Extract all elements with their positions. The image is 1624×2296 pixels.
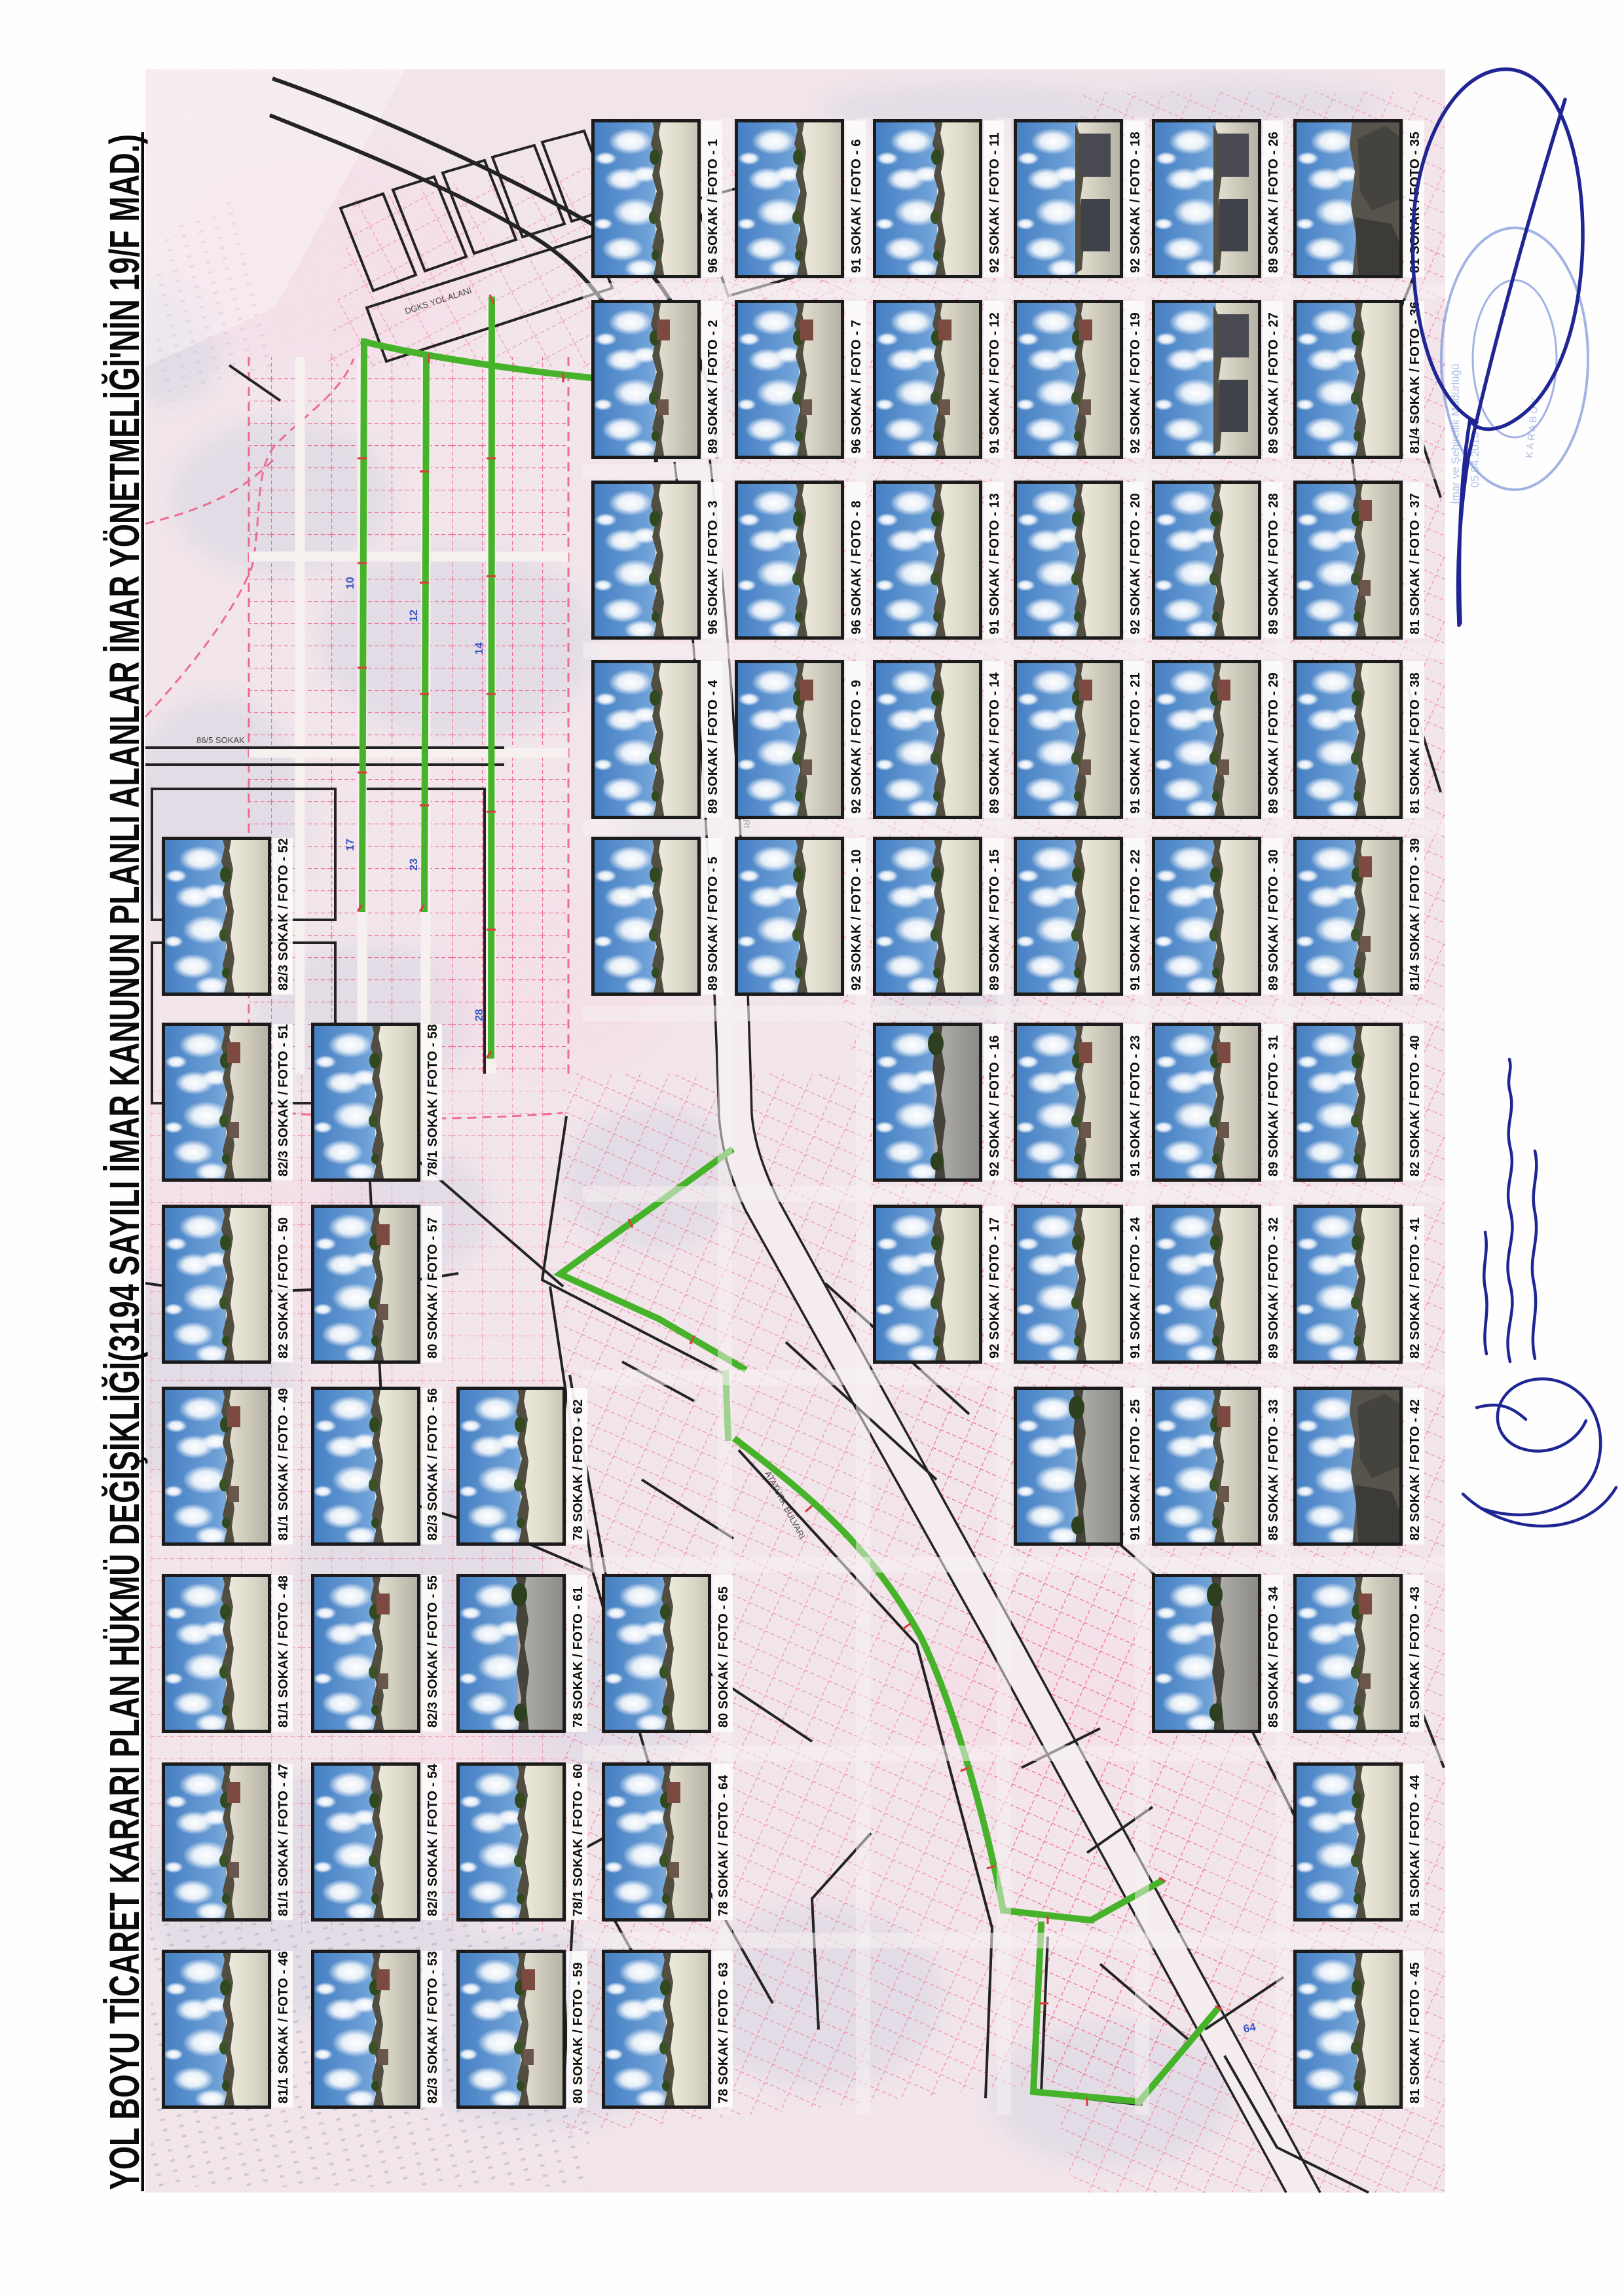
svg-text:82 SOKAK / FOTO - 40: 82 SOKAK / FOTO - 40	[1408, 1035, 1422, 1176]
svg-text:96 SOKAK / FOTO - 8: 96 SOKAK / FOTO - 8	[849, 500, 864, 634]
svg-text:85 SOKAK / FOTO - 34: 85 SOKAK / FOTO - 34	[1266, 1586, 1281, 1728]
svg-text:89 SOKAK / FOTO - 28: 89 SOKAK / FOTO - 28	[1266, 493, 1281, 634]
svg-text:91 SOKAK / FOTO - 22: 91 SOKAK / FOTO - 22	[1128, 849, 1143, 991]
svg-text:92 SOKAK / FOTO - 18: 92 SOKAK / FOTO - 18	[1128, 132, 1143, 273]
svg-text:78/1 SOKAK / FOTO - 60: 78/1 SOKAK / FOTO - 60	[571, 1764, 585, 1916]
svg-text:78 SOKAK / FOTO - 62: 78 SOKAK / FOTO - 62	[571, 1399, 585, 1540]
svg-text:80 SOKAK / FOTO - 59: 80 SOKAK / FOTO - 59	[571, 1962, 585, 2104]
svg-text:82 SOKAK / FOTO - 50: 82 SOKAK / FOTO - 50	[276, 1217, 291, 1358]
svg-text:96 SOKAK / FOTO - 7: 96 SOKAK / FOTO - 7	[849, 319, 864, 454]
svg-text:89 SOKAK / FOTO - 14: 89 SOKAK / FOTO - 14	[987, 672, 1002, 814]
svg-text:81/1 SOKAK / FOTO - 47: 81/1 SOKAK / FOTO - 47	[276, 1764, 291, 1916]
svg-text:92 SOKAK / FOTO - 10: 92 SOKAK / FOTO - 10	[849, 849, 864, 991]
svg-text:91 SOKAK / FOTO - 21: 91 SOKAK / FOTO - 21	[1128, 672, 1143, 814]
svg-text:91 SOKAK / FOTO - 6: 91 SOKAK / FOTO - 6	[849, 139, 864, 273]
svg-text:82 SOKAK / FOTO - 41: 82 SOKAK / FOTO - 41	[1408, 1217, 1422, 1358]
svg-text:89 SOKAK / FOTO - 29: 89 SOKAK / FOTO - 29	[1266, 672, 1281, 814]
svg-text:91 SOKAK / FOTO - 12: 91 SOKAK / FOTO - 12	[987, 312, 1002, 454]
svg-text:91 SOKAK / FOTO - 13: 91 SOKAK / FOTO - 13	[987, 493, 1002, 634]
svg-text:23: 23	[407, 858, 420, 871]
svg-text:92 SOKAK / FOTO - 11: 92 SOKAK / FOTO - 11	[987, 132, 1002, 273]
svg-text:YOL BOYU TİCARET KARARI PLAN H: YOL BOYU TİCARET KARARI PLAN HÜKMÜ DEĞİŞ…	[101, 134, 148, 2190]
svg-text:İmar ve Şehircilik Müdürlüğü: İmar ve Şehircilik Müdürlüğü	[1449, 364, 1462, 504]
svg-text:89 SOKAK / FOTO - 2: 89 SOKAK / FOTO - 2	[706, 319, 720, 454]
svg-text:81 SOKAK / FOTO - 38: 81 SOKAK / FOTO - 38	[1408, 672, 1422, 814]
svg-text:78 SOKAK / FOTO - 64: 78 SOKAK / FOTO - 64	[716, 1774, 731, 1916]
svg-text:92 SOKAK / FOTO - 20: 92 SOKAK / FOTO - 20	[1128, 493, 1143, 634]
svg-text:82/3 SOKAK / FOTO - 56: 82/3 SOKAK / FOTO - 56	[426, 1388, 440, 1540]
svg-text:85 SOKAK / FOTO - 33: 85 SOKAK / FOTO - 33	[1266, 1399, 1281, 1540]
svg-text:82/3 SOKAK / FOTO - 51: 82/3 SOKAK / FOTO - 51	[276, 1024, 291, 1176]
svg-text:81 SOKAK / FOTO - 37: 81 SOKAK / FOTO - 37	[1408, 493, 1422, 634]
svg-text:81 SOKAK / FOTO - 45: 81 SOKAK / FOTO - 45	[1408, 1962, 1422, 2104]
svg-text:89 SOKAK / FOTO - 30: 89 SOKAK / FOTO - 30	[1266, 849, 1281, 991]
svg-text:10: 10	[344, 577, 356, 589]
svg-text:92 SOKAK / FOTO - 16: 92 SOKAK / FOTO - 16	[987, 1035, 1002, 1176]
svg-text:80 SOKAK / FOTO - 65: 80 SOKAK / FOTO - 65	[716, 1586, 731, 1728]
svg-text:78 SOKAK / FOTO - 61: 78 SOKAK / FOTO - 61	[571, 1586, 585, 1728]
svg-text:17: 17	[344, 839, 356, 851]
svg-text:92 SOKAK / FOTO - 19: 92 SOKAK / FOTO - 19	[1128, 312, 1143, 454]
svg-text:89 SOKAK / FOTO - 5: 89 SOKAK / FOTO - 5	[706, 856, 720, 991]
svg-text:91 SOKAK / FOTO - 25: 91 SOKAK / FOTO - 25	[1128, 1399, 1143, 1540]
svg-text:89 SOKAK / FOTO - 4: 89 SOKAK / FOTO - 4	[706, 680, 720, 814]
svg-text:89 SOKAK / FOTO - 15: 89 SOKAK / FOTO - 15	[987, 849, 1002, 991]
svg-text:81/1 SOKAK / FOTO - 49: 81/1 SOKAK / FOTO - 49	[276, 1388, 291, 1540]
svg-text:82/3 SOKAK / FOTO - 53: 82/3 SOKAK / FOTO - 53	[426, 1951, 440, 2104]
svg-text:89 SOKAK / FOTO - 31: 89 SOKAK / FOTO - 31	[1266, 1035, 1281, 1176]
svg-text:81 SOKAK / FOTO - 44: 81 SOKAK / FOTO - 44	[1408, 1774, 1422, 1916]
svg-text:91 SOKAK / FOTO - 24: 91 SOKAK / FOTO - 24	[1128, 1216, 1143, 1358]
svg-text:96 SOKAK / FOTO - 3: 96 SOKAK / FOTO - 3	[706, 500, 720, 634]
svg-text:81/1 SOKAK / FOTO - 46: 81/1 SOKAK / FOTO - 46	[276, 1951, 291, 2104]
svg-text:96 SOKAK / FOTO - 1: 96 SOKAK / FOTO - 1	[706, 139, 720, 273]
svg-text:12: 12	[407, 610, 420, 622]
svg-text:82/3 SOKAK / FOTO - 52: 82/3 SOKAK / FOTO - 52	[276, 838, 291, 991]
svg-text:86/5 SOKAK: 86/5 SOKAK	[196, 735, 245, 745]
svg-text:28: 28	[473, 1009, 485, 1021]
svg-text:92 SOKAK / FOTO - 17: 92 SOKAK / FOTO - 17	[987, 1217, 1002, 1358]
svg-text:81/4 SOKAK / FOTO - 39: 81/4 SOKAK / FOTO - 39	[1408, 838, 1422, 991]
svg-text:78 SOKAK / FOTO - 63: 78 SOKAK / FOTO - 63	[716, 1962, 731, 2104]
svg-text:82 SOKAK / FOTO - 42: 82 SOKAK / FOTO - 42	[1408, 1399, 1422, 1540]
svg-text:78/1 SOKAK / FOTO - 58: 78/1 SOKAK / FOTO - 58	[426, 1024, 440, 1176]
svg-text:92 SOKAK / FOTO - 9: 92 SOKAK / FOTO - 9	[849, 680, 864, 814]
svg-text:89 SOKAK / FOTO - 32: 89 SOKAK / FOTO - 32	[1266, 1217, 1281, 1358]
svg-text:80 SOKAK / FOTO - 57: 80 SOKAK / FOTO - 57	[426, 1217, 440, 1358]
svg-text:91 SOKAK / FOTO - 23: 91 SOKAK / FOTO - 23	[1128, 1035, 1143, 1176]
svg-text:89 SOKAK / FOTO - 27: 89 SOKAK / FOTO - 27	[1266, 312, 1281, 454]
svg-text:81/1 SOKAK / FOTO - 48: 81/1 SOKAK / FOTO - 48	[276, 1575, 291, 1728]
svg-text:89 SOKAK / FOTO - 26: 89 SOKAK / FOTO - 26	[1266, 132, 1281, 273]
svg-text:14: 14	[473, 642, 485, 655]
svg-text:82/3 SOKAK / FOTO - 54: 82/3 SOKAK / FOTO - 54	[426, 1763, 440, 1916]
svg-text:82/3 SOKAK / FOTO - 55: 82/3 SOKAK / FOTO - 55	[426, 1575, 440, 1728]
svg-text:81 SOKAK / FOTO - 43: 81 SOKAK / FOTO - 43	[1408, 1586, 1422, 1728]
